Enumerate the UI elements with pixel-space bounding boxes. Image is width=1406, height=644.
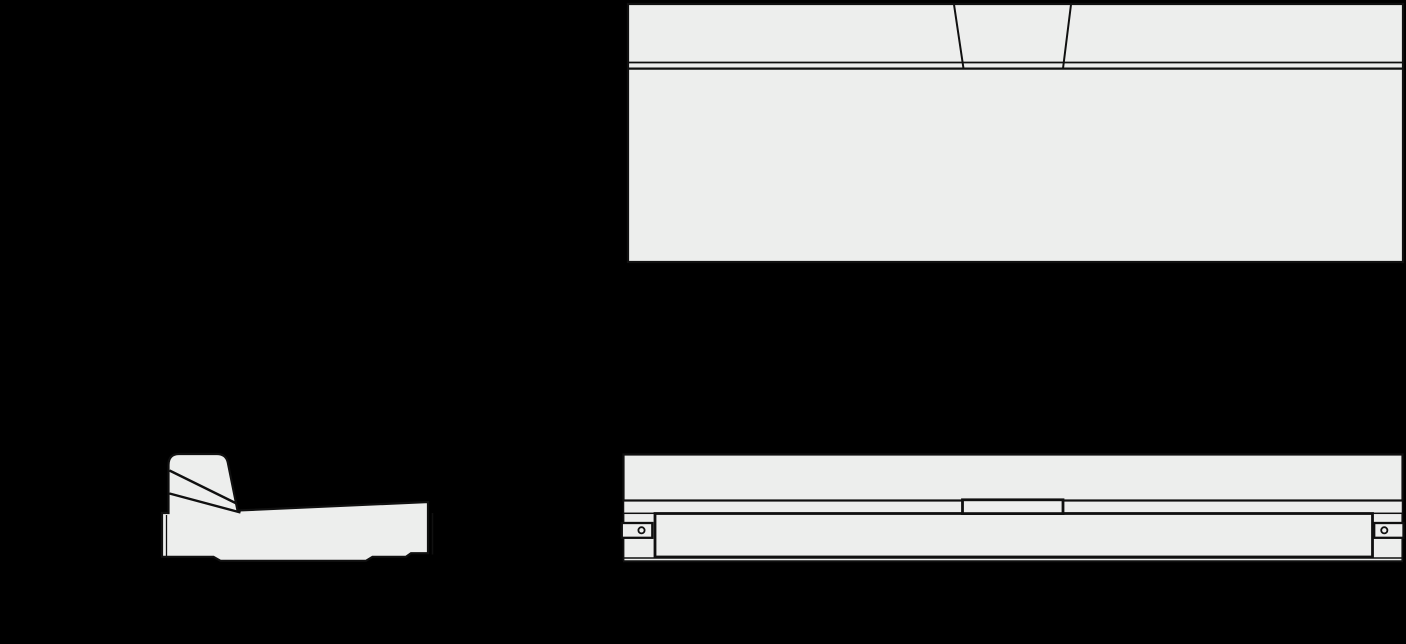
bed-plan-view: [628, 4, 1403, 262]
front-left-screw-hole: [638, 527, 644, 533]
front-side-rail: [655, 514, 1373, 558]
front-center-bracket: [963, 500, 1064, 514]
front-left-leg: [622, 523, 653, 538]
front-mattress: [624, 455, 1403, 501]
side-silhouette: [162, 454, 428, 561]
bed-side-view: [162, 454, 433, 561]
plan-outline: [628, 4, 1403, 262]
front-right-screw-hole: [1381, 527, 1387, 533]
bed-front-view: [622, 455, 1404, 562]
technical-drawing: [0, 0, 1406, 644]
front-right-leg: [1374, 523, 1403, 538]
drawing-stage: [0, 0, 1406, 644]
